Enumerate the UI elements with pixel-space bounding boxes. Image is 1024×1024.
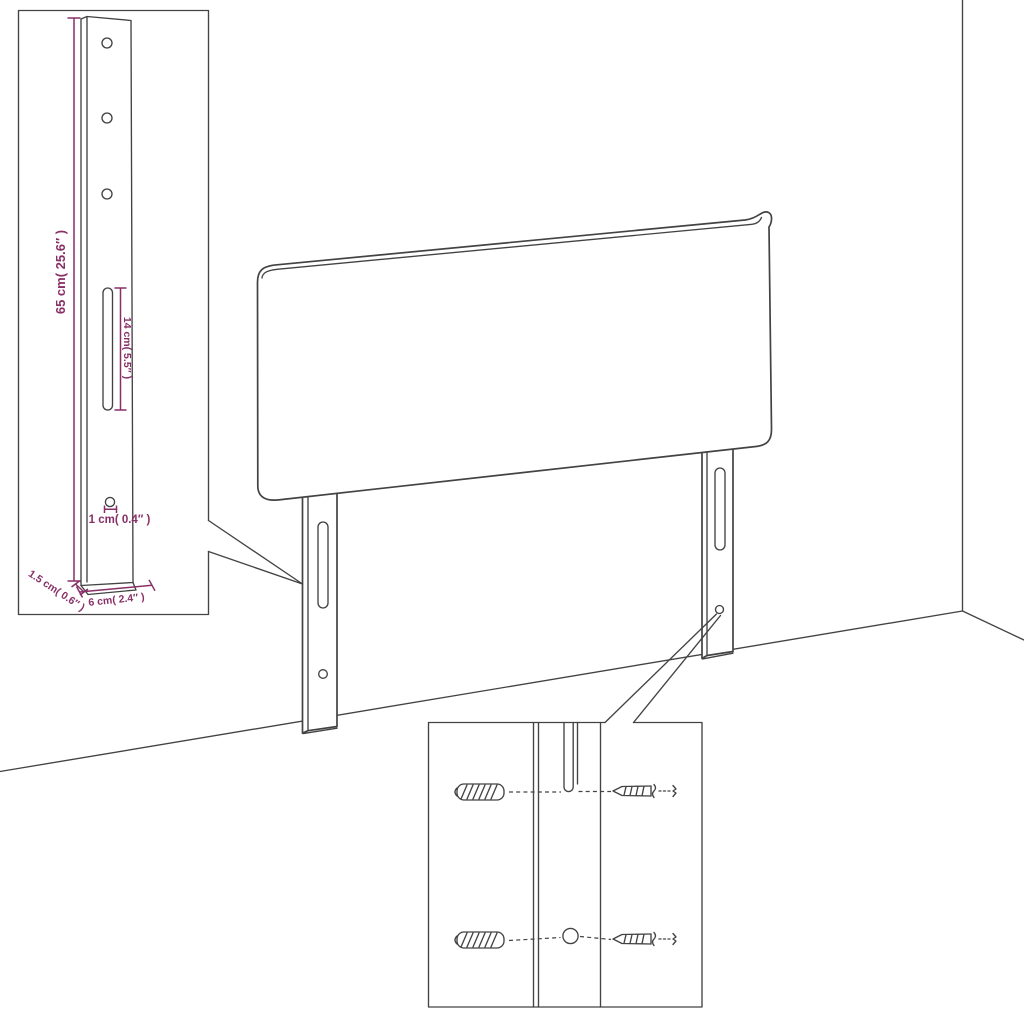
dim-height-label: 65 cm( 25.6″ ): [53, 230, 68, 314]
callout-wedge-left: [209, 521, 303, 585]
headboard-panel: [257, 212, 771, 500]
right-leg-hole: [716, 606, 724, 614]
right-leg-slot: [715, 468, 725, 550]
leg-small-hole: [105, 497, 114, 506]
leg-hole-2: [102, 113, 112, 123]
leg-hole-3: [102, 189, 112, 199]
headboard-left-leg: [303, 485, 338, 734]
diagram-canvas: 65 cm( 25.6″ ) 14 cm( 5.5″ ) 1 cm( 0.4″ …: [0, 0, 1024, 1024]
headboard-right-leg: [702, 443, 733, 659]
leg-hole-1: [102, 38, 112, 48]
left-leg-slot: [318, 522, 328, 608]
left-leg-hole: [319, 670, 328, 679]
mounting-detail-inset: [429, 614, 721, 1007]
dim-hole-label: 1 cm( 0.4″ ): [89, 514, 151, 526]
leg-slot: [103, 288, 113, 410]
assembly-diagram: 65 cm( 25.6″ ) 14 cm( 5.5″ ) 1 cm( 0.4″ …: [0, 0, 1024, 1024]
dim-slot-label: 14 cm( 5.5″ ): [121, 317, 133, 379]
floor-line-right: [963, 611, 1024, 640]
